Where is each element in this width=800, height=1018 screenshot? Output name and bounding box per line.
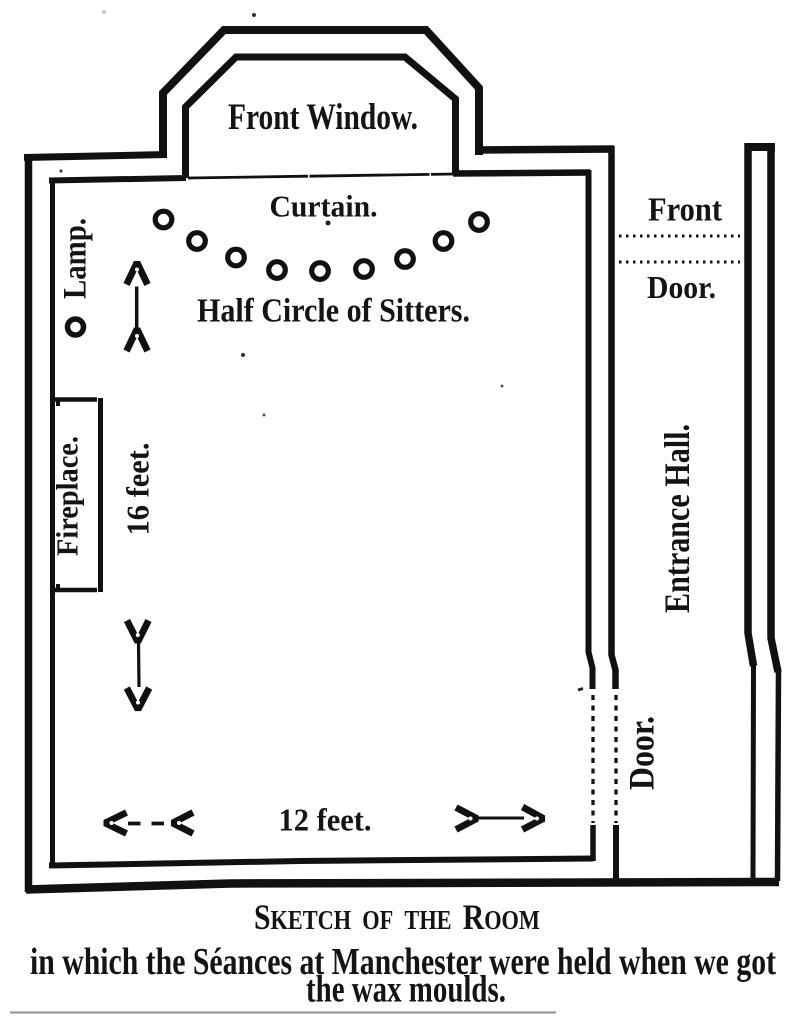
svg-text:16 feet.: 16 feet. [120,443,156,536]
svg-text:Fireplace.: Fireplace. [50,436,85,556]
svg-text:Front: Front [648,192,723,229]
svg-text:Door.: Door. [647,269,716,305]
svg-text:Half Circle of Sitters.: Half Circle of Sitters. [197,293,470,330]
svg-text:Lamp.: Lamp. [57,218,93,299]
svg-text:Front Window.: Front Window. [228,97,418,138]
svg-text:Curtain.: Curtain. [270,189,378,224]
svg-text:the wax moulds.: the wax moulds. [306,969,506,1011]
svg-text:12 feet.: 12 feet. [279,803,372,838]
svg-text:Door.: Door. [621,716,661,790]
svg-text:Entrance Hall.: Entrance Hall. [657,424,697,613]
